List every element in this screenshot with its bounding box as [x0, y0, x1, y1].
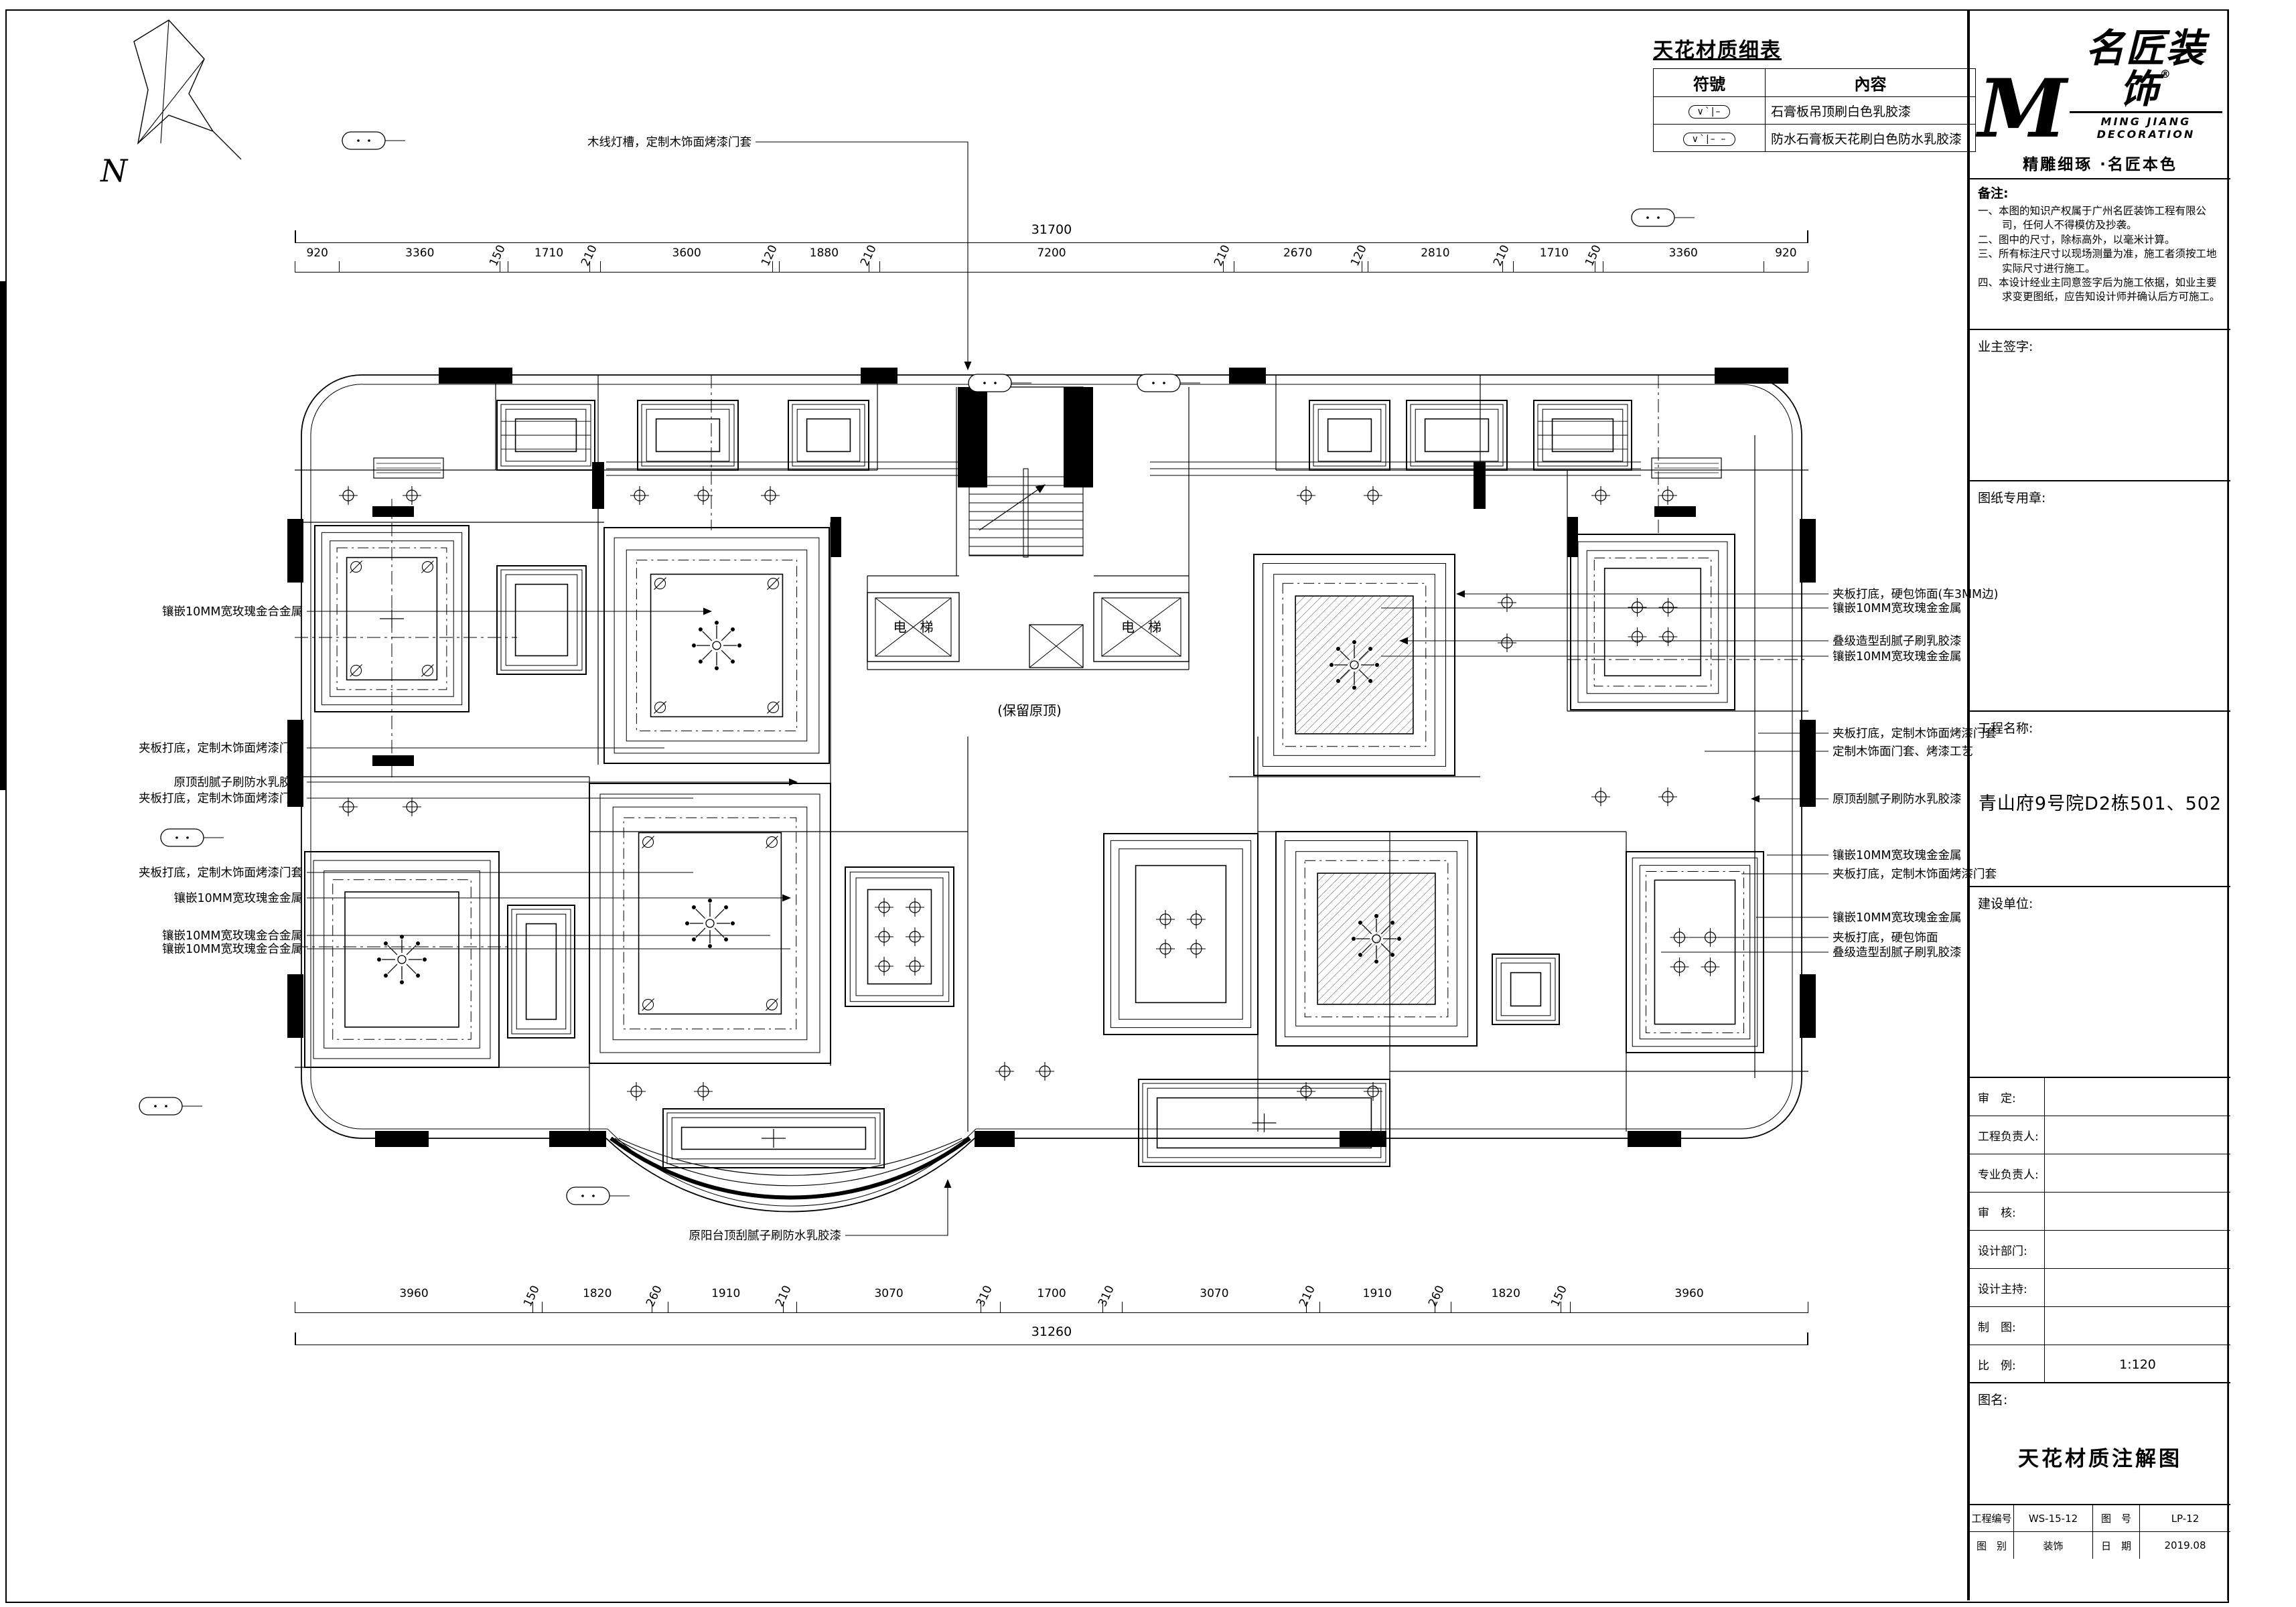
project-name-section: 工程名称: 青山府9号院D2栋501、502: [1970, 712, 2230, 887]
index-pill: [567, 1187, 630, 1205]
dimension-value: 120: [759, 243, 780, 269]
annotation-right: 镶嵌10MM宽玫瑰金金属: [1833, 846, 1961, 863]
field-value: [2045, 1231, 2230, 1268]
dimension-segment: 310: [981, 1302, 1001, 1312]
dimension-value: 210: [1212, 243, 1233, 269]
field-value: [2045, 1154, 2230, 1192]
field-row: 设计主持:: [1970, 1269, 2230, 1307]
owner-signature-section: 业主签字:: [1970, 330, 2230, 481]
ceiling-panel: [1492, 954, 1559, 1024]
field-value: [2045, 1307, 2230, 1345]
date: 2019.08: [2140, 1532, 2230, 1559]
field-row: 制 图:: [1970, 1307, 2230, 1345]
dimension-segment: 1880: [780, 261, 870, 272]
dimension-segment: 2810: [1368, 261, 1503, 272]
dimension-value: 150: [1549, 1284, 1570, 1309]
index-pill: [968, 374, 1031, 392]
elevator: 电 梯: [867, 593, 959, 662]
dimension-value: 210: [1491, 243, 1512, 269]
ceiling-panel: [638, 400, 738, 470]
dimension-segment: 260: [1435, 1302, 1451, 1312]
dimension-segment: 1820: [1451, 1302, 1561, 1312]
index-pill: [161, 829, 224, 846]
ceiling-panel: [663, 1109, 884, 1168]
logo-m-icon: M: [1978, 78, 2067, 141]
note-item: 一、本图的知识产权属于广州名匠装饰工程有限公司，任何人不得模仿及抄袭。: [1978, 204, 2222, 233]
legend-col-symbol: 符號: [1654, 69, 1766, 97]
dimension-segment: 1710: [508, 261, 591, 272]
annotation-left: 夹板打底，定制木饰面烤漆门套: [139, 739, 303, 756]
ceiling-panel: [508, 905, 575, 1038]
legend-symbol: ∨ˋ|–: [1689, 105, 1731, 119]
category-label: 图 别: [1970, 1532, 2014, 1559]
dimension-segment: 3960: [1571, 1302, 1808, 1312]
dimension-segment: 2670: [1234, 261, 1362, 272]
field-label: 审 定:: [1970, 1078, 2045, 1116]
ceiling-panel: [1534, 400, 1632, 470]
field-value: [2045, 1193, 2230, 1230]
annotation-right: 叠级造型刮腻子刷乳胶漆: [1833, 632, 1962, 649]
project-name: 青山府9号院D2栋501、502: [1978, 789, 2222, 815]
dimension-segment: 150: [500, 261, 508, 272]
title-block: M 名匠装饰® MING JIANG DECORATION 精雕细琢 ·名匠本色…: [1967, 9, 2230, 1600]
bottom-dimension-row: 3960150182026019102103070310170031030702…: [295, 1284, 1808, 1313]
field-row: 设计部门:: [1970, 1231, 2230, 1269]
dimension-segment: 1910: [668, 1302, 784, 1312]
dimension-value: 1910: [1363, 1287, 1392, 1300]
annotation-top: 木线灯槽，定制木饰面烤漆门套: [587, 133, 751, 150]
legend-row: ∨ˋ|– –防水石膏板天花刷白色防水乳胶漆: [1654, 125, 1976, 152]
ceiling-panel: [497, 400, 595, 470]
dimension-value: 3960: [1674, 1287, 1703, 1300]
dimension-value: 310: [974, 1284, 995, 1309]
footer-table: 工程编号 WS-15-12 图 号 LP-12 图 别 装饰 日 期 2019.…: [1970, 1505, 2230, 1559]
dimension-value: 1910: [711, 1287, 740, 1300]
dimension-value: 3360: [1669, 246, 1698, 260]
ceiling-panels: [305, 400, 1764, 1168]
dimension-segment: 150: [1561, 1302, 1571, 1312]
legend-title: 天花材质细表: [1653, 33, 1976, 63]
dimension-segment: 1910: [1320, 1302, 1435, 1312]
elevator-label: 电 梯: [893, 619, 934, 635]
notes-section: 备注: 一、本图的知识产权属于广州名匠装饰工程有限公司，任何人不得模仿及抄袭。二…: [1970, 179, 2230, 330]
dimension-value: 7200: [1037, 246, 1066, 260]
legend-content-cell: 防水石膏板天花刷白色防水乳胶漆: [1766, 125, 1976, 152]
keep-original-ceiling-label: (保留原顶): [997, 702, 1062, 718]
legend-symbol: ∨ˋ|– –: [1683, 133, 1735, 146]
dimension-value: 1710: [534, 246, 563, 260]
north-label: N: [100, 153, 127, 189]
figure-no-label: 图 号: [2093, 1505, 2140, 1532]
top-dimension-row: 9203360150171021036001201880210720021026…: [295, 244, 1808, 273]
legend-content-cell: 石膏板吊顶刷白色乳胶漆: [1766, 97, 1976, 125]
logo-english: MING JIANG DECORATION: [2070, 111, 2222, 141]
field-label: 比 例:: [1970, 1345, 2045, 1383]
ceiling-panel: [1407, 400, 1507, 470]
annotation-right: 定制木饰面门套、烤漆工艺: [1833, 743, 1973, 759]
dimension-value: 210: [774, 1284, 795, 1309]
dimension-value: 1700: [1037, 1287, 1066, 1300]
ceiling-panel: [497, 566, 586, 674]
dimension-value: 3070: [874, 1287, 903, 1300]
stair-elevator-core: 电 梯电 梯(保留原顶): [867, 387, 1189, 718]
project-no-label: 工程编号: [1970, 1505, 2014, 1532]
legend-col-content: 內容: [1766, 69, 1976, 97]
legend-row: ∨ˋ|–石膏板吊顶刷白色乳胶漆: [1654, 97, 1976, 125]
annotation-left: 夹板打底，定制木饰面烤漆门套: [139, 789, 303, 806]
annotation-right: 原顶刮腻子刷防水乳胶漆: [1833, 790, 1962, 807]
field-row: 比 例:1:120: [1970, 1345, 2230, 1383]
field-row: 审 核:: [1970, 1193, 2230, 1231]
drawing-name-section: 图名: 天花材质注解图: [1970, 1383, 2230, 1505]
annotation-left: 原顶刮腻子刷防水乳胶漆: [174, 773, 303, 790]
top-dimension-total: 31700: [295, 212, 1808, 243]
field-label: 设计主持:: [1970, 1269, 2045, 1306]
dimension-value: 1820: [1492, 1287, 1520, 1300]
legend-symbol-cell: ∨ˋ|–: [1654, 97, 1766, 125]
dimension-value: 920: [1775, 246, 1796, 260]
ceiling-panel: [788, 400, 869, 470]
dimension-value: 3070: [1200, 1287, 1228, 1300]
field-value: [2045, 1078, 2230, 1116]
dimension-segment: 1820: [543, 1302, 652, 1312]
dimension-value: 1880: [810, 246, 839, 260]
dimension-value: 3360: [405, 246, 434, 260]
dimension-value: 260: [1426, 1284, 1447, 1309]
dimension-value: 150: [488, 243, 509, 269]
dimension-segment: 3070: [1123, 1302, 1307, 1312]
index-pill: [139, 1097, 202, 1115]
note-item: 三、所有标注尺寸以现场测量为准，施工者须按工地实际尺寸进行施工。: [1978, 247, 2222, 276]
annotation-bottom: 原阳台顶刮腻子刷防水乳胶漆: [689, 1227, 842, 1243]
north-arrow-icon: [134, 20, 241, 159]
dimension-segment: 120: [773, 261, 780, 272]
dimension-segment: 920: [295, 261, 340, 272]
field-label: 制 图:: [1970, 1307, 2045, 1345]
dimension-segment: 260: [652, 1302, 668, 1312]
annotation-right: 镶嵌10MM宽玫瑰金金属: [1833, 647, 1961, 664]
field-value: [2045, 1116, 2230, 1154]
category: 装饰: [2014, 1532, 2093, 1559]
dimension-segment: 3360: [1603, 261, 1764, 272]
ceiling-panel: [305, 852, 499, 1067]
dimension-segment: 210: [1503, 261, 1514, 272]
index-pill: [342, 132, 405, 149]
annotation-left: 镶嵌10MM宽玫瑰金合金属: [162, 603, 303, 619]
field-label: 专业负责人:: [1970, 1154, 2045, 1192]
annotation-left: 夹板打底，定制木饰面烤漆门套: [139, 864, 303, 881]
dimension-segment: 3360: [340, 261, 500, 272]
field-label: 审 核:: [1970, 1193, 2045, 1230]
dimension-value: 1820: [583, 1287, 612, 1300]
date-label: 日 期: [2093, 1532, 2140, 1559]
project-no: WS-15-12: [2014, 1505, 2093, 1532]
dimension-segment: 7200: [880, 261, 1224, 272]
note-item: 四、本设计经业主同意签字后为施工依据，如业主要求变更图纸，应告知设计师并确认后方…: [1978, 276, 2222, 305]
field-value: [2045, 1269, 2230, 1306]
note-item: 二、图中的尺寸，除标高外，以毫米计算。: [1978, 233, 2222, 247]
annotation-left: 镶嵌10MM宽玫瑰金金属: [174, 889, 303, 906]
ceiling-material-legend: 天花材质细表 符號 內容 ∨ˋ|–石膏板吊顶刷白色乳胶漆∨ˋ|– –防水石膏板天…: [1653, 33, 1976, 152]
dimension-value: 2670: [1283, 246, 1312, 260]
dimension-segment: 3600: [601, 261, 773, 272]
registered-mark: ®: [2160, 68, 2172, 80]
dimension-value: 1710: [1540, 246, 1569, 260]
ceiling-panel: [1139, 1079, 1390, 1166]
dimension-segment: 210: [869, 261, 880, 272]
ceiling-panel: [1276, 832, 1477, 1046]
client-section: 建设单位:: [1970, 887, 2230, 1078]
dimension-segment: 3960: [295, 1302, 533, 1312]
annotation-right: 镶嵌10MM宽玫瑰金金属: [1833, 909, 1961, 925]
drawing-sheet: 电 梯电 梯(保留原顶) N 天花材质细表 符號 內容 ∨ˋ|–石膏板吊顶刷白色…: [0, 0, 2296, 1607]
legend-symbol-cell: ∨ˋ|– –: [1654, 125, 1766, 152]
leader-lines: [139, 132, 1828, 1235]
dimension-segment: 920: [1764, 261, 1808, 272]
ceiling-panel: [845, 867, 954, 1006]
exterior-walls: [301, 375, 1802, 1212]
dimension-segment: 3070: [797, 1302, 981, 1312]
approval-fields: 审 定:工程负责人:专业负责人:审 核:设计部门:设计主持:制 图:比 例:1:…: [1970, 1078, 2230, 1383]
elevator: 电 梯: [1094, 593, 1189, 662]
field-row: 工程负责人:: [1970, 1116, 2230, 1154]
dimension-segment: 310: [1103, 1302, 1123, 1312]
dimension-segment: 210: [590, 261, 601, 272]
dimension-segment: 150: [1595, 261, 1603, 272]
ceiling-panel: [1309, 400, 1390, 470]
field-label: 工程负责人:: [1970, 1116, 2045, 1154]
ceiling-panel: [604, 528, 829, 763]
legend-table: 符號 內容 ∨ˋ|–石膏板吊顶刷白色乳胶漆∨ˋ|– –防水石膏板天花刷白色防水乳…: [1653, 68, 1976, 152]
elevator-label: 电 梯: [1121, 619, 1161, 635]
annotation-right: 叠级造型刮腻子刷乳胶漆: [1833, 943, 1962, 960]
dimension-segment: 210: [784, 1302, 797, 1312]
interior-partitions: [295, 375, 1808, 1132]
ceiling-panel: [1254, 554, 1455, 775]
drawing-name: 天花材质注解图: [1978, 1442, 2222, 1472]
ceiling-panel: [1571, 534, 1735, 710]
index-pill: [1137, 374, 1200, 392]
drawing-stamp-section: 图纸专用章:: [1970, 481, 2230, 712]
notes-title: 备注:: [1978, 183, 2222, 202]
dimension-segment: 150: [533, 1302, 543, 1312]
dimension-value: 3600: [672, 246, 701, 260]
dimension-segment: 210: [1307, 1302, 1320, 1312]
dimension-segment: 1700: [1001, 1302, 1103, 1312]
bottom-dimension-total: 31260: [295, 1314, 1808, 1345]
wall-poche: [287, 368, 1816, 1147]
shaft: [1029, 625, 1083, 668]
annotation-right: 镶嵌10MM宽玫瑰金金属: [1833, 599, 1961, 616]
field-row: 审 定:: [1970, 1078, 2230, 1116]
logo-company-name: 名匠装饰®: [2070, 28, 2222, 110]
annotation-left: 镶嵌10MM宽玫瑰金合金属: [162, 940, 303, 957]
ceiling-panel: [1104, 834, 1258, 1035]
dimension-segment: 210: [1224, 261, 1234, 272]
field-row: 专业负责人:: [1970, 1154, 2230, 1193]
dimension-segment: 120: [1362, 261, 1369, 272]
field-value: 1:120: [2045, 1345, 2230, 1383]
dimension-value: 3960: [399, 1287, 428, 1300]
dimension-value: 2810: [1421, 246, 1449, 260]
field-label: 设计部门:: [1970, 1231, 2045, 1268]
ceiling-panel: [589, 783, 831, 1063]
figure-no: LP-12: [2140, 1505, 2230, 1532]
company-logo: M 名匠装饰® MING JIANG DECORATION 精雕细琢 ·名匠本色: [1970, 9, 2230, 179]
dimension-value: 920: [306, 246, 328, 260]
